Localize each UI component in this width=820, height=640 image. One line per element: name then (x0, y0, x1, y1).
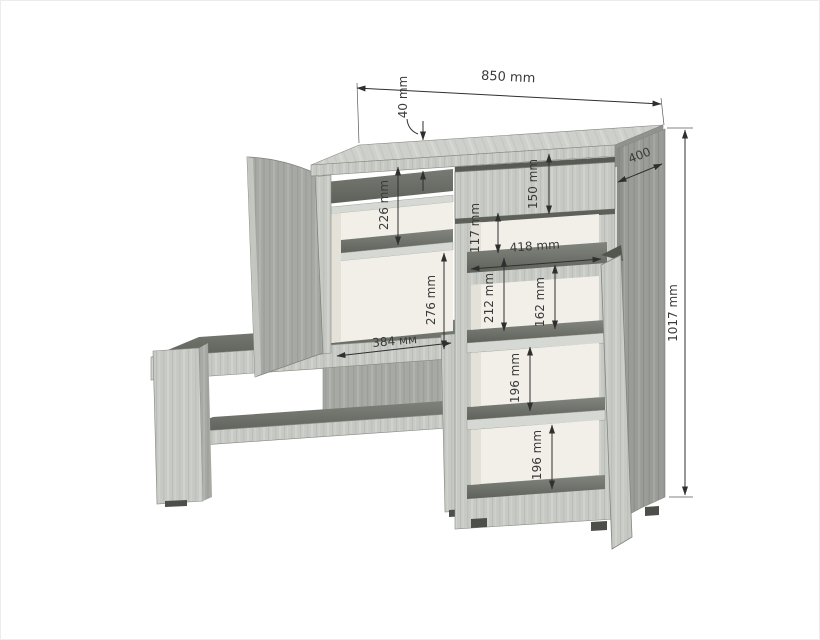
compartment-b-back (471, 343, 599, 407)
compartment-c-shadow (471, 429, 481, 485)
dim-850-label: 850 mm (481, 69, 536, 87)
dim-196a-label: 196 mm (508, 353, 522, 403)
dim-850-ext-right (661, 98, 664, 125)
dim-1017-label: 1017 mm (666, 284, 680, 342)
dim-226-label: 226 mm (377, 180, 391, 230)
bench-left-foot (165, 500, 187, 507)
hutch-inner-left-shadow (331, 213, 341, 343)
dim-40-leader (407, 119, 418, 134)
dim-196b-label: 196 mm (530, 430, 544, 480)
tall-cabinet (455, 129, 665, 549)
dim-212-label: 212 mm (482, 273, 496, 323)
dim-162-label: 162 mm (533, 277, 547, 327)
dim-40-label: 40 mm (396, 76, 410, 118)
furniture-drawing: 850 mm 40 mm 400 1017 mm 150 mm 117 mm 4… (1, 1, 820, 640)
cabinet-foot-left (471, 518, 487, 528)
dim-850-ext-left (357, 83, 359, 143)
technical-drawing-canvas: 850 mm 40 mm 400 1017 mm 150 mm 117 mm 4… (0, 0, 820, 640)
cabinet-foot-side (645, 506, 659, 516)
compartment-b-shadow (471, 352, 481, 407)
cabinet-foot-right (591, 521, 607, 531)
dim-150-label: 150 mm (526, 159, 540, 209)
bench-left-leg (153, 348, 203, 504)
dim-117-label: 117 mm (468, 203, 482, 253)
dim-276-label: 276 mm (424, 275, 438, 325)
compartment-a-shadow (471, 284, 481, 330)
